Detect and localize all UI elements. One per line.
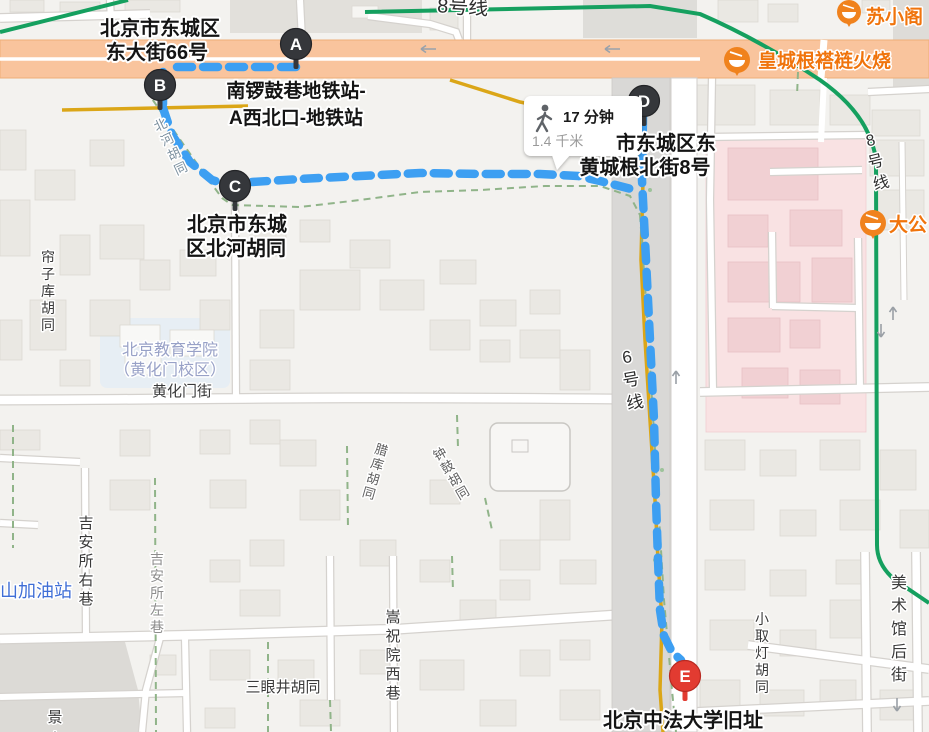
address-d: 市东城区东 [616,131,716,155]
street-xiaoqudeng: 小取灯胡同 [755,611,769,695]
map-canvas[interactable]: A B C D E [0,0,929,732]
street-sanyanjing: 三眼井胡同 [245,679,320,696]
address-c: 北京市东城 [187,212,287,236]
marker-letter: B [154,76,166,95]
street-jian-right: 吉安所右巷 [78,515,93,608]
line8-label-top: 8号线 [437,0,489,20]
route-distance: 1.4 千米 [532,133,583,149]
street-meishuguan: 美术馆后街 [891,574,907,684]
marker-letter: A [290,35,302,54]
address-e: 北京中法大学旧址 [603,708,763,732]
poi-label-huangchenggen[interactable]: 皇城根褡裢火烧 [758,49,891,72]
marker-letter: E [679,667,690,686]
street-lianzi-ku: 帘子库胡同 [41,249,55,333]
station-label: A西北口-地铁站 [229,106,363,129]
poi-label-suxiaoge[interactable]: 苏小阁 [866,5,923,28]
poi-label-edu-college[interactable]: 北京教育学院 [122,341,218,359]
address-d: 黄城根北街8号 [579,155,710,179]
marker-letter: C [229,177,241,196]
street-huanghuamen: 黄化门街 [152,383,212,400]
map-svg[interactable]: A B C D E [0,0,929,732]
courtyard-compound [490,423,570,491]
poi-label-edu-college[interactable]: （黄化门校区） [114,361,226,379]
route-duration: 17 分钟 [563,108,614,126]
poi-label-dagong[interactable]: 大公 [889,213,927,236]
station-label: 南锣鼓巷地铁站- [226,79,365,102]
address-c: 区北河胡同 [186,237,286,260]
street-jian-left: 吉安所左巷 [150,551,164,635]
street-songzhuyuan: 嵩祝院西巷 [385,609,400,702]
address-a: 北京市东城区 [100,16,220,40]
poi-label-gas-station[interactable]: 山加油站 [0,581,72,601]
address-a: 东大街66号 [106,40,208,64]
